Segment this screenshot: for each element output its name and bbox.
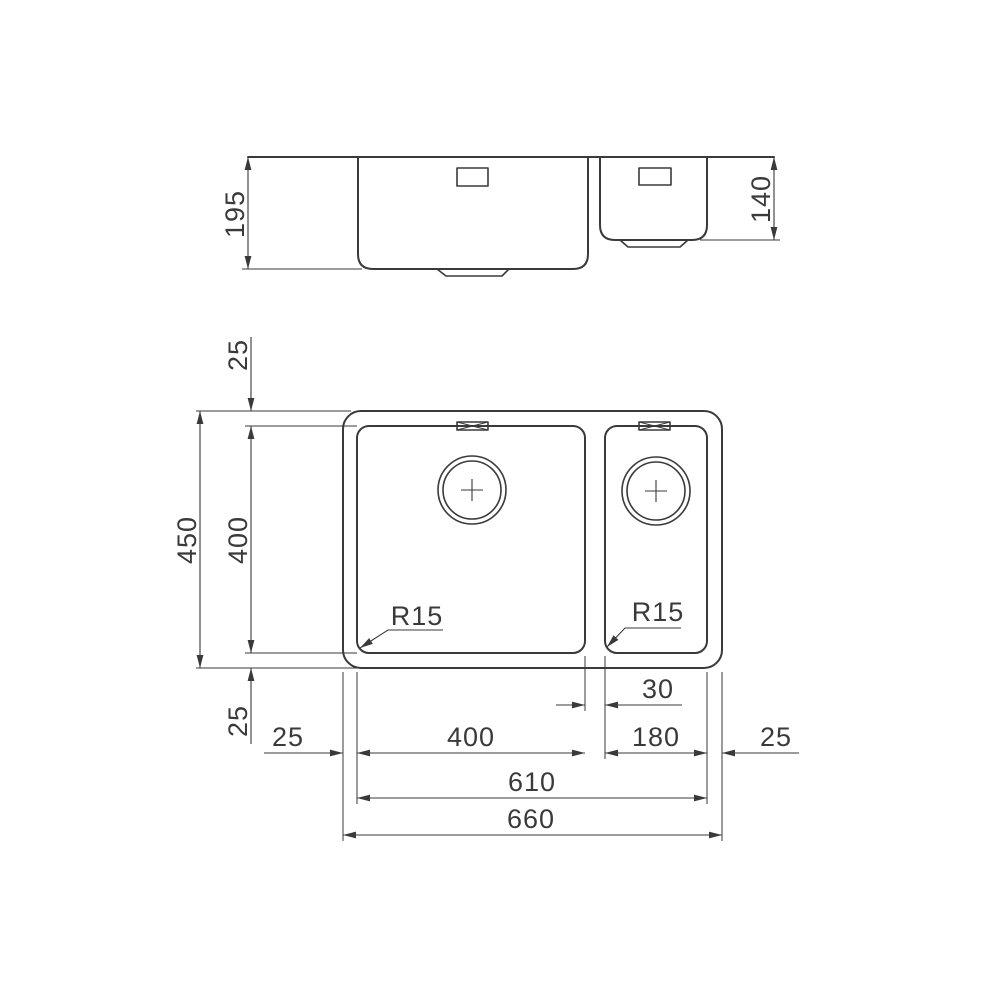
dim-rim-top: 25: [223, 337, 253, 411]
sink-dimension-drawing: 195 140: [0, 0, 1000, 1000]
dim-rim-left: 25: [264, 722, 343, 753]
elevation-view: 195 140: [220, 157, 780, 276]
large-bowl-profile: [358, 157, 588, 269]
small-bowl-profile: [600, 157, 707, 240]
dim-overall-length: 450: [172, 411, 202, 668]
dim-overall-width: 660: [343, 804, 722, 835]
dim-label-195: 195: [220, 190, 250, 238]
leader-line: [607, 628, 681, 647]
dim-bowl-length: 400: [223, 426, 253, 653]
dim-large-bowl-depth: 195: [220, 157, 362, 269]
dim-bowls-span: 610: [357, 767, 707, 798]
technical-drawing-svg: 195 140: [0, 0, 1000, 1000]
radius-label-r15: R15: [632, 597, 685, 627]
dim-small-bowl-depth: 140: [700, 157, 780, 240]
dim-rim-bottom: 25: [223, 668, 253, 744]
small-bowl-radius-callout: R15: [607, 597, 684, 647]
dim-label-140: 140: [746, 175, 776, 223]
dim-label-450: 450: [172, 516, 202, 564]
dim-bowl-gap: 30: [556, 674, 682, 705]
large-bowl-radius-callout: R15: [360, 601, 443, 648]
radius-label-r15: R15: [391, 601, 444, 631]
large-bowl-drain-outlet: [437, 269, 509, 276]
dim-label-25: 25: [272, 722, 304, 752]
dim-large-bowl-width: 400: [357, 722, 585, 753]
dim-label-660: 660: [507, 804, 555, 834]
dim-small-bowl-width: 180: [605, 722, 707, 753]
large-bowl-overflow-slot: [457, 168, 488, 186]
dim-label-180: 180: [632, 722, 680, 752]
small-bowl-overflow-slot: [639, 168, 671, 185]
large-bowl-drain: [438, 456, 506, 524]
dim-label-25: 25: [223, 339, 253, 371]
plan-view: R15 R15: [343, 411, 722, 668]
dim-label-400: 400: [223, 516, 253, 564]
small-bowl-drain: [622, 457, 690, 525]
dim-rim-right: 25: [722, 722, 799, 753]
plan-dimensions: 450 400 25 25 30 25: [172, 337, 799, 841]
dim-label-400: 400: [447, 722, 495, 752]
dim-label-30: 30: [642, 674, 674, 704]
leader-line: [360, 630, 443, 648]
small-bowl-drain-outlet: [620, 240, 688, 247]
dim-label-610: 610: [508, 767, 556, 797]
dim-label-25: 25: [223, 705, 253, 737]
dim-label-25: 25: [760, 722, 792, 752]
